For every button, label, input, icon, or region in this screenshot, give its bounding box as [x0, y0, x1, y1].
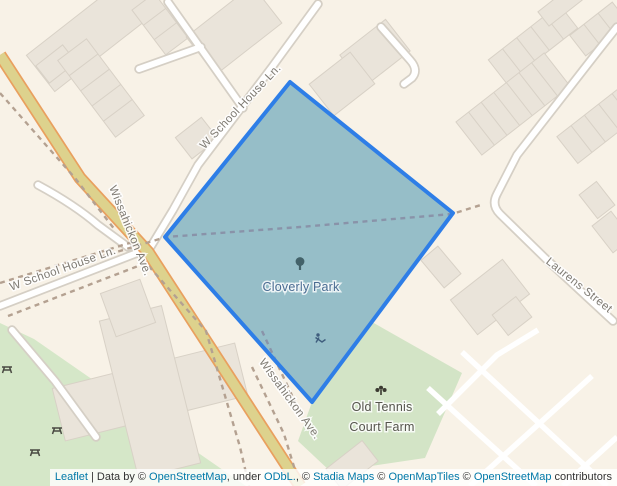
attribution-text: , © [296, 471, 313, 483]
openstreetmap-link[interactable]: OpenStreetMap [149, 471, 227, 483]
attribution-text: © [374, 471, 388, 483]
leaflet-link[interactable]: Leaflet [55, 471, 88, 483]
farm-name-line2: Court Farm [349, 420, 414, 434]
attribution-bar: Leaflet | Data by © OpenStreetMap, under… [50, 469, 617, 486]
odbl-link[interactable]: ODbL. [264, 471, 296, 483]
stadia-maps-link[interactable]: Stadia Maps [313, 471, 374, 483]
map-canvas[interactable]: W School House Ln. W School House Ln. Wi… [0, 0, 617, 486]
attribution-text: © [460, 471, 474, 483]
park-name-label: Cloverly Park [263, 280, 340, 294]
attribution-text: contributors [551, 471, 612, 483]
map-tiles: W School House Ln. W School House Ln. Wi… [0, 0, 617, 486]
farm-name-line1: Old Tennis [352, 400, 413, 414]
openmaptiles-link[interactable]: OpenMapTiles [388, 471, 459, 483]
attribution-text: , under [227, 471, 264, 483]
openstreetmap-contributors-link[interactable]: OpenStreetMap [474, 471, 552, 483]
attribution-text: | Data by © [88, 471, 149, 483]
